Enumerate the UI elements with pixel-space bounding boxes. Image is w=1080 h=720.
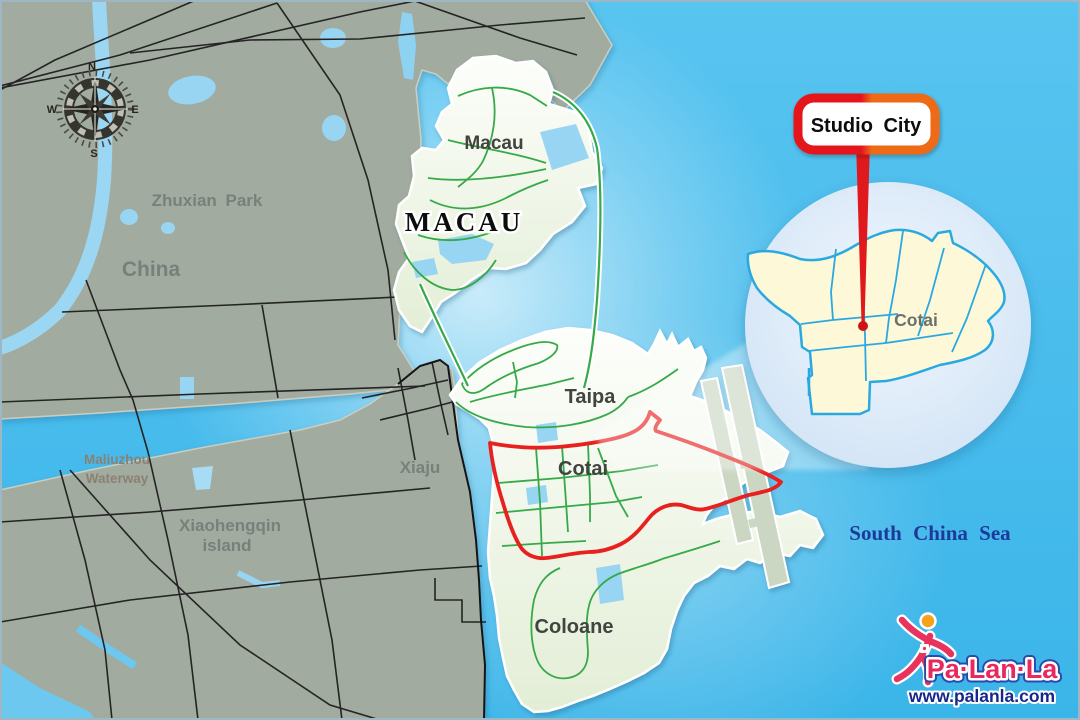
taipa-label: Taipa [565,386,617,408]
lake [320,28,346,48]
lake [180,377,194,399]
compass-e: E [131,104,138,116]
cotai-label: Cotai [558,458,608,480]
inset-magnifier: Cotai [745,182,1031,468]
studio-city-sign: Studio City [798,98,935,150]
south-china-sea-label: South China Sea [849,521,1011,545]
macau-peninsula-label: Macau [464,133,523,154]
xiaohengqin-label-line2: island [202,536,251,555]
lake [161,222,175,234]
compass-s: S [90,148,97,160]
lake [526,485,548,505]
china-label: China [122,258,181,281]
lake [536,422,558,443]
macau-map: Zhuxian Park China Maliuzhou Waterway Xi… [0,0,1080,720]
website-text: www.palanla.com [908,686,1055,706]
inset-cotai-label: Cotai [894,310,938,330]
zhuxian-park-label: Zhuxian Park [152,191,263,210]
brand-text: Pa·Lan·La [927,654,1059,684]
compass-n: N [88,61,96,73]
coloane-label: Coloane [535,616,614,638]
compass-hub-dot [93,107,97,111]
map-canvas: Zhuxian Park China Maliuzhou Waterway Xi… [0,0,1080,720]
xiaohengqin-label-line1: Xiaohengqin [179,516,281,535]
lake [120,209,138,225]
compass-w: W [47,104,58,116]
lake [596,564,624,604]
pin-dot [858,321,868,331]
figure-head [921,614,936,629]
sign-label: Studio City [811,115,922,137]
xiaju-label: Xiaju [400,458,441,477]
figure-chest-dot [923,647,926,650]
maliuzhou-label-line2: Waterway [86,471,149,486]
maliuzhou-label-line1: Maliuzhou [84,452,150,467]
lake [322,115,346,141]
macau-big-label: MACAU [405,207,523,237]
